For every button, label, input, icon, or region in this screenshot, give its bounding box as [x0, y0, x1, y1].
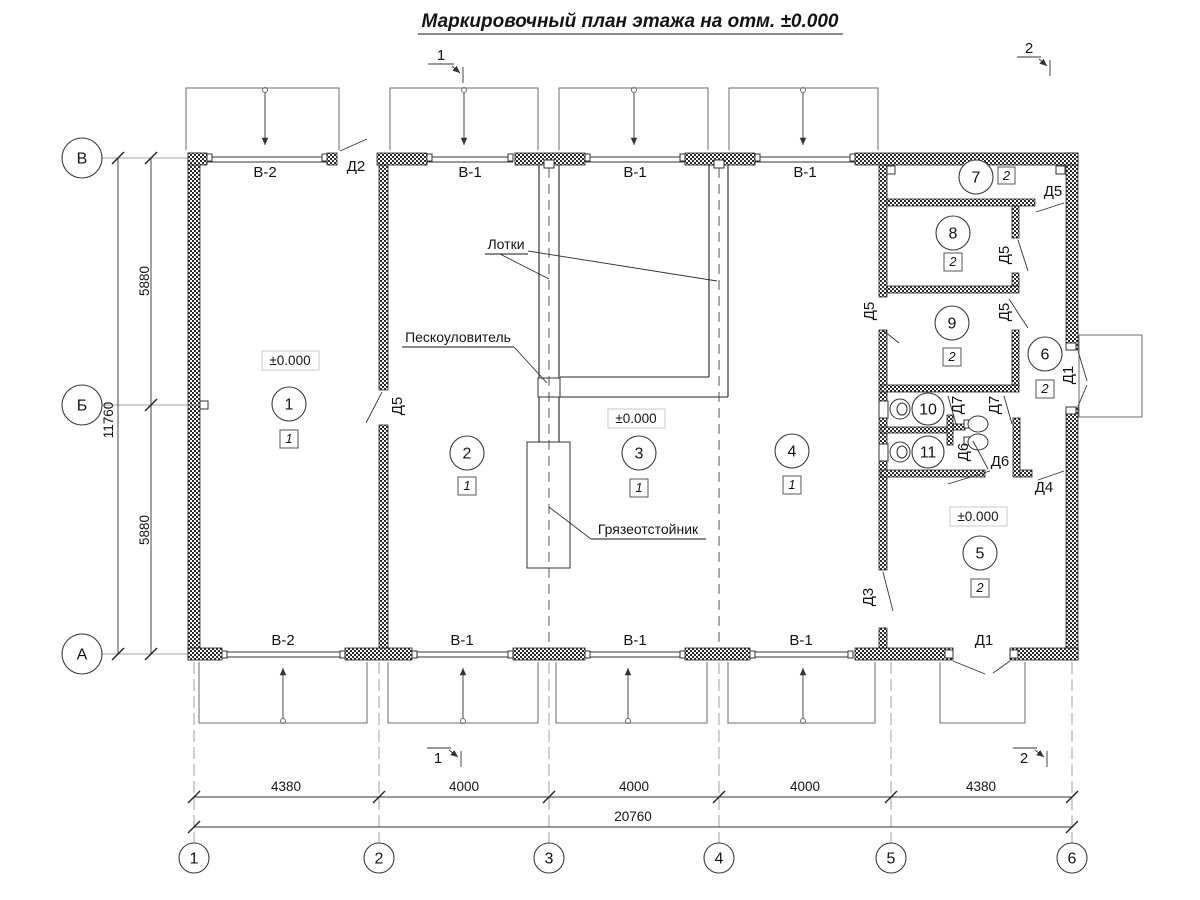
wall-segment	[887, 199, 1035, 206]
room-category: 2	[975, 580, 984, 595]
floor-plan-drawing: Маркировочный план этажа на отм. ±0.000 …	[0, 0, 1200, 900]
room-number: 1	[285, 397, 294, 414]
room-category: 1	[285, 431, 292, 446]
section-mark-2-top: 2	[1017, 40, 1050, 76]
canopy-outline	[186, 88, 339, 150]
corner-detail	[887, 166, 895, 174]
wall-segment	[188, 153, 207, 165]
section-label: 1	[437, 47, 445, 64]
toilet-tank	[879, 401, 888, 418]
axis-label: Б	[77, 398, 88, 415]
toilet-tank	[879, 444, 888, 461]
mud-settler-label: Грязеотстойник	[598, 521, 699, 537]
drainage	[527, 160, 728, 568]
room-category: 1	[463, 478, 470, 493]
corner-detail	[1056, 166, 1065, 174]
window-label: В-1	[458, 164, 481, 181]
window-label: В-1	[623, 164, 646, 181]
wall-segment	[953, 424, 965, 430]
door-jamb	[1066, 343, 1076, 350]
wall-segment	[379, 165, 388, 390]
sand-trap-label: Пескоуловитель	[405, 329, 511, 345]
door-label-d1: Д1	[975, 632, 994, 649]
tray-wall-connector	[714, 160, 724, 168]
elevation-mark: ±0.000	[957, 509, 998, 524]
wall-segment	[881, 427, 953, 433]
porch-outline-right	[1079, 335, 1142, 417]
wall-segment	[1066, 407, 1078, 660]
section-label: 1	[434, 750, 442, 767]
axis-label: 5	[887, 851, 896, 868]
room-number: 2	[463, 446, 472, 463]
elevation-mark: ±0.000	[615, 411, 656, 426]
door-label-d7: Д7	[986, 396, 1003, 415]
room-number: 10	[919, 402, 937, 419]
plan-canvas: Маркировочный план этажа на отм. ±0.000 …	[0, 0, 1200, 900]
trays-label: Лотки	[487, 236, 524, 252]
top-canopies	[186, 88, 878, 151]
room-category: 2	[948, 254, 957, 269]
sink-basin	[968, 416, 988, 432]
door-label-d6: Д6	[955, 443, 972, 462]
door-label-d7: Д7	[949, 396, 966, 415]
dim-segment: 4380	[966, 779, 996, 794]
wall-segment	[1013, 418, 1020, 477]
grid-axes-left: В Б А	[62, 138, 208, 674]
door-label-d5: Д5	[1044, 183, 1063, 200]
ramp-outline	[728, 662, 875, 723]
door-label-d5: Д5	[996, 303, 1013, 322]
axis-label: В	[77, 151, 88, 168]
room-number: 11	[920, 445, 937, 462]
wall-segment	[513, 648, 585, 660]
axis-wall-marker	[200, 401, 208, 409]
wall-segment	[377, 153, 427, 165]
dim-segment: 5880	[137, 266, 152, 296]
wall-segment	[947, 415, 953, 445]
door-jamb	[945, 650, 953, 658]
section-mark-1-bottom: 1	[427, 748, 461, 767]
window-label: В-1	[789, 632, 812, 649]
section-mark-1-top: 1	[428, 47, 463, 83]
axis-label: 6	[1068, 851, 1077, 868]
tray-wall-connector	[544, 160, 554, 168]
section-label: 2	[1020, 750, 1028, 767]
drawing-title: Маркировочный план этажа на отм. ±0.000	[418, 11, 843, 34]
room-category: 2	[1040, 381, 1049, 396]
axis-label: А	[77, 647, 88, 664]
room-number: 7	[972, 170, 981, 187]
dim-segment: 4000	[449, 779, 479, 794]
room-number: 4	[788, 444, 797, 461]
room-category: 1	[635, 480, 642, 495]
room-category: 1	[788, 477, 795, 492]
dim-segment: 4000	[790, 779, 820, 794]
canopy-outline	[559, 88, 708, 150]
axis-label: 2	[375, 851, 384, 868]
dimensions-bottom: 4380 4000 4000 4000 4380 20760	[188, 779, 1078, 833]
dim-segment: 4380	[271, 779, 301, 794]
wall-segment	[1012, 330, 1019, 385]
door-label-d1: Д1	[1060, 366, 1077, 385]
wall-segment	[881, 470, 985, 477]
door-label-d5: Д5	[861, 302, 878, 321]
wall-segment	[881, 385, 1019, 392]
dim-segment: 4000	[619, 779, 649, 794]
canopy-outline	[729, 88, 878, 150]
ramp-outline	[556, 662, 707, 723]
window-label: В-2	[253, 164, 276, 181]
door-label-d3: Д3	[860, 588, 877, 607]
dimensions-left: 11760 5880 5880	[101, 152, 157, 660]
door-jamb	[1066, 407, 1076, 414]
door-label-d5: Д5	[996, 246, 1013, 265]
room-category: 2	[1002, 168, 1011, 183]
wall-segment	[1010, 648, 1078, 660]
wall-segment	[879, 628, 887, 648]
window-label: В-1	[623, 632, 646, 649]
porch-outline	[940, 662, 1025, 723]
dim-total-left: 11760	[101, 402, 116, 439]
room-category: 2	[947, 349, 956, 364]
door-jamb	[1010, 650, 1018, 658]
wall-segment	[1012, 273, 1019, 286]
room-number: 3	[635, 446, 644, 463]
wall-segment	[685, 648, 750, 660]
window-label: В-1	[793, 164, 816, 181]
room-number: 5	[976, 546, 985, 563]
bottom-ramps	[199, 662, 1025, 724]
wall-segment	[1012, 206, 1019, 238]
door-label-d4: Д4	[1035, 479, 1054, 496]
door-label-d5: Д5	[389, 397, 406, 416]
door-label-d6: Д6	[991, 453, 1010, 470]
wall-segment	[345, 648, 412, 660]
window-label: В-2	[271, 632, 294, 649]
wall-segment	[327, 153, 337, 165]
axis-label: 4	[715, 851, 724, 868]
door-label-d2: Д2	[347, 158, 366, 175]
dim-segment: 5880	[137, 515, 152, 545]
toilet-bowl-inner	[897, 446, 907, 458]
page-title: Маркировочный план этажа на отм. ±0.000	[422, 11, 839, 32]
room-number: 9	[948, 316, 957, 333]
section-arrow-icon	[452, 66, 460, 73]
mud-settler-box	[527, 442, 570, 568]
elevation-mark: ±0.000	[269, 353, 310, 368]
section-arrow-icon	[1039, 59, 1047, 66]
grid-axes-bottom: 1 2 3 4 5 6	[179, 662, 1087, 873]
window-label: В-1	[450, 632, 473, 649]
wall-segment	[887, 286, 1019, 293]
room-number: 6	[1041, 347, 1050, 364]
axis-label: 3	[545, 851, 554, 868]
room-number: 8	[949, 226, 958, 243]
wall-segment	[188, 648, 222, 660]
section-mark-2-bottom: 2	[1013, 748, 1047, 767]
axis-label: 1	[190, 851, 199, 868]
wall-segment	[188, 153, 200, 660]
wall-segment	[855, 648, 953, 660]
toilet-bowl-inner	[897, 403, 907, 415]
wall-segment	[379, 425, 388, 648]
wall-segment	[879, 165, 887, 297]
wall-segment	[1020, 470, 1032, 477]
dim-total-bottom: 20760	[614, 809, 652, 824]
section-label: 2	[1025, 40, 1033, 57]
wall-segment	[1066, 153, 1078, 350]
